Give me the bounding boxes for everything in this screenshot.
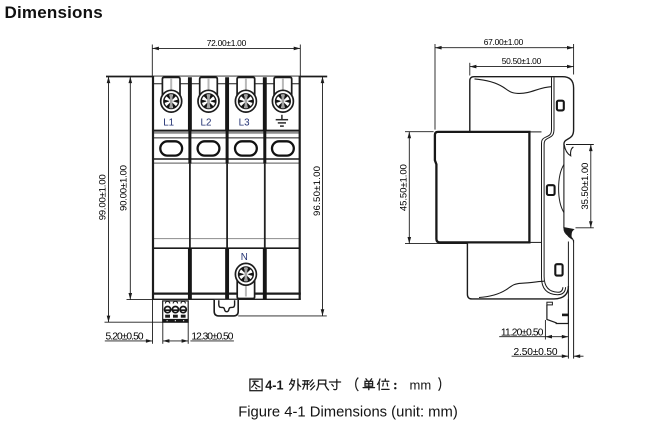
svg-text:96.50±1.00: 96.50±1.00: [312, 166, 323, 216]
svg-text:2.50±0.50: 2.50±0.50: [514, 347, 558, 358]
svg-text:L2: L2: [201, 117, 212, 128]
svg-text:67.00±1.00: 67.00±1.00: [484, 37, 524, 47]
svg-text:12.30±0.50: 12.30±0.50: [191, 332, 233, 343]
svg-text:35.50±1.00: 35.50±1.00: [580, 163, 591, 210]
svg-text:L3: L3: [239, 117, 250, 128]
svg-text:90.00±1.00: 90.00±1.00: [119, 165, 130, 211]
svg-text:11.20±0.50: 11.20±0.50: [501, 327, 544, 338]
svg-text:5.20±0.50: 5.20±0.50: [106, 332, 144, 343]
svg-text:mm: mm: [410, 378, 432, 393]
svg-text:72.00±1.00: 72.00±1.00: [207, 38, 247, 48]
svg-text:Figure 4-1 Dimensions (unit: m: Figure 4-1 Dimensions (unit: mm): [238, 405, 458, 421]
svg-text:50.50±1.00: 50.50±1.00: [502, 56, 542, 66]
svg-text:45.50±1.00: 45.50±1.00: [398, 164, 409, 211]
svg-text:99.00±1.00: 99.00±1.00: [98, 174, 109, 220]
svg-text:L1: L1: [163, 117, 174, 128]
svg-text:N: N: [241, 252, 248, 263]
svg-text:4-1: 4-1: [265, 378, 283, 392]
